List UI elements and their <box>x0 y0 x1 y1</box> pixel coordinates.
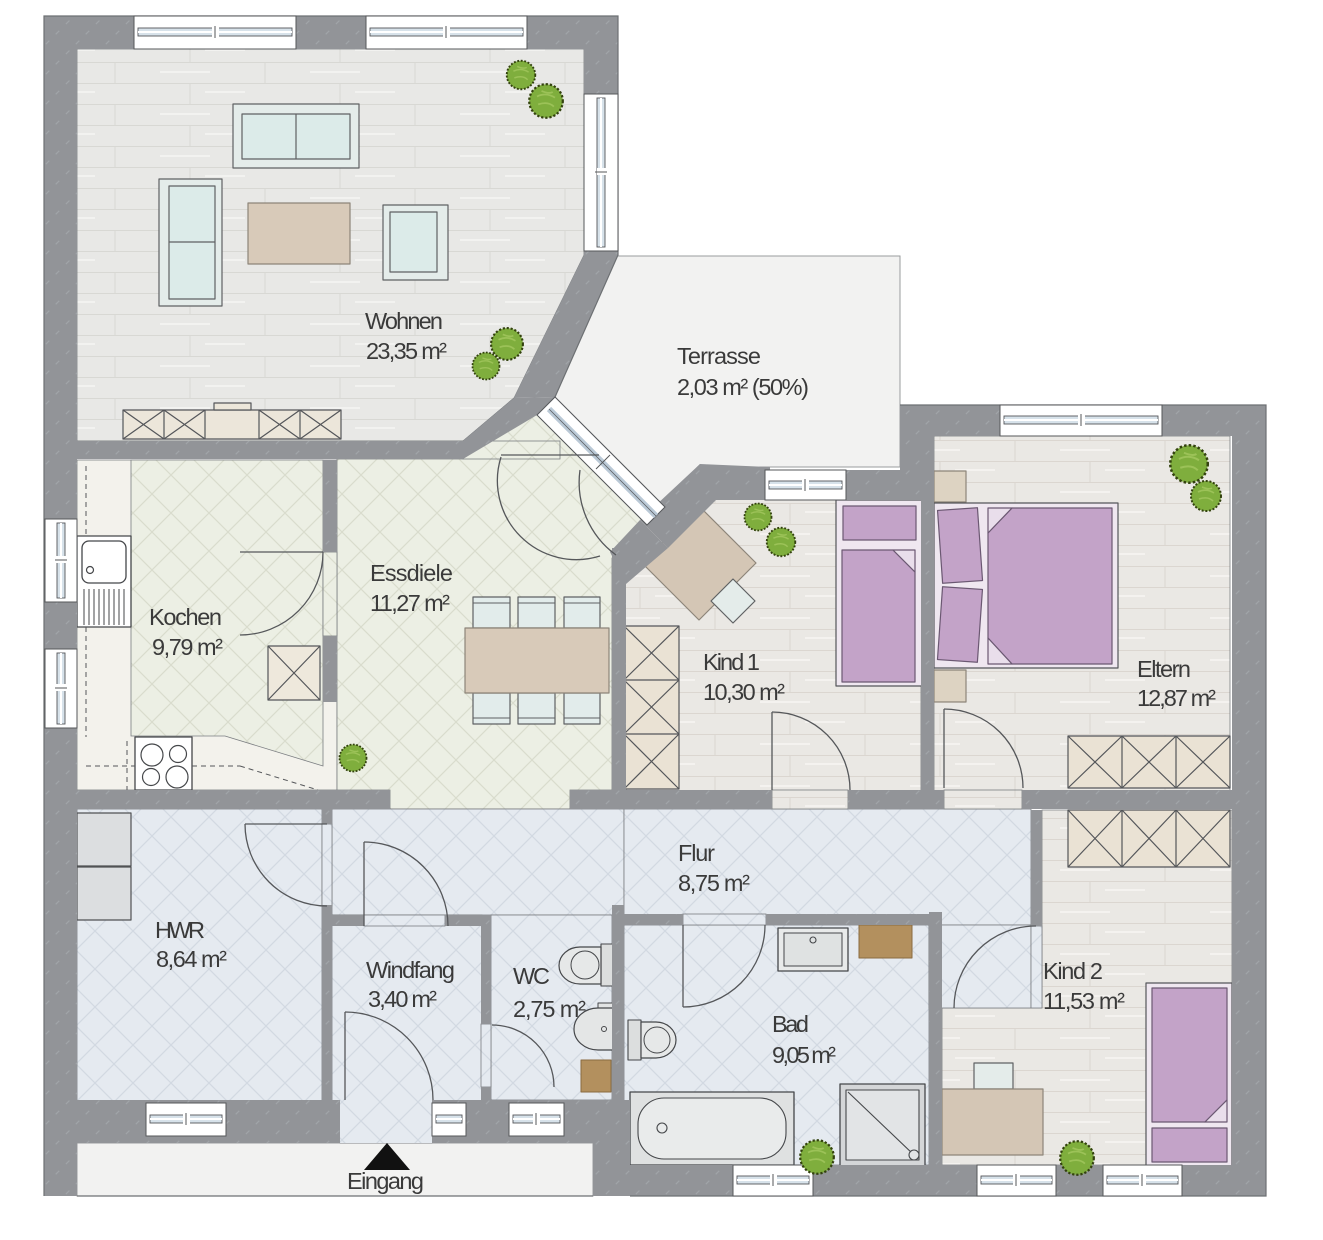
svg-text:10,30 m²: 10,30 m² <box>703 679 785 705</box>
svg-text:Bad: Bad <box>772 1011 809 1037</box>
svg-text:9,05 m²: 9,05 m² <box>772 1042 836 1068</box>
svg-text:Essdiele: Essdiele <box>370 560 453 586</box>
svg-text:2,03 m² (50%): 2,03 m² (50%) <box>677 374 809 400</box>
svg-text:2,75 m²: 2,75 m² <box>513 996 586 1022</box>
svg-text:Kind 1: Kind 1 <box>703 649 760 675</box>
svg-text:Eltern: Eltern <box>1137 656 1191 682</box>
svg-text:Eingang: Eingang <box>347 1168 424 1194</box>
svg-text:Windfang: Windfang <box>366 957 455 983</box>
svg-text:9,79 m²: 9,79 m² <box>152 634 223 660</box>
svg-text:Kind 2: Kind 2 <box>1043 958 1103 984</box>
svg-text:3,40 m²: 3,40 m² <box>368 986 437 1012</box>
svg-text:Wohnen: Wohnen <box>365 308 443 334</box>
svg-text:8,75 m²: 8,75 m² <box>678 870 750 896</box>
svg-text:Flur: Flur <box>678 840 715 866</box>
svg-text:Kochen: Kochen <box>149 604 222 630</box>
svg-text:HWR: HWR <box>155 917 205 943</box>
svg-text:8,64 m²: 8,64 m² <box>156 946 227 972</box>
svg-text:11,53 m²: 11,53 m² <box>1043 988 1125 1014</box>
svg-text:Terrasse: Terrasse <box>677 343 761 369</box>
svg-text:12,87 m²: 12,87 m² <box>1137 685 1216 711</box>
svg-text:11,27 m²: 11,27 m² <box>370 590 450 616</box>
svg-text:WC: WC <box>513 963 550 989</box>
svg-text:23,35 m²: 23,35 m² <box>366 338 447 364</box>
